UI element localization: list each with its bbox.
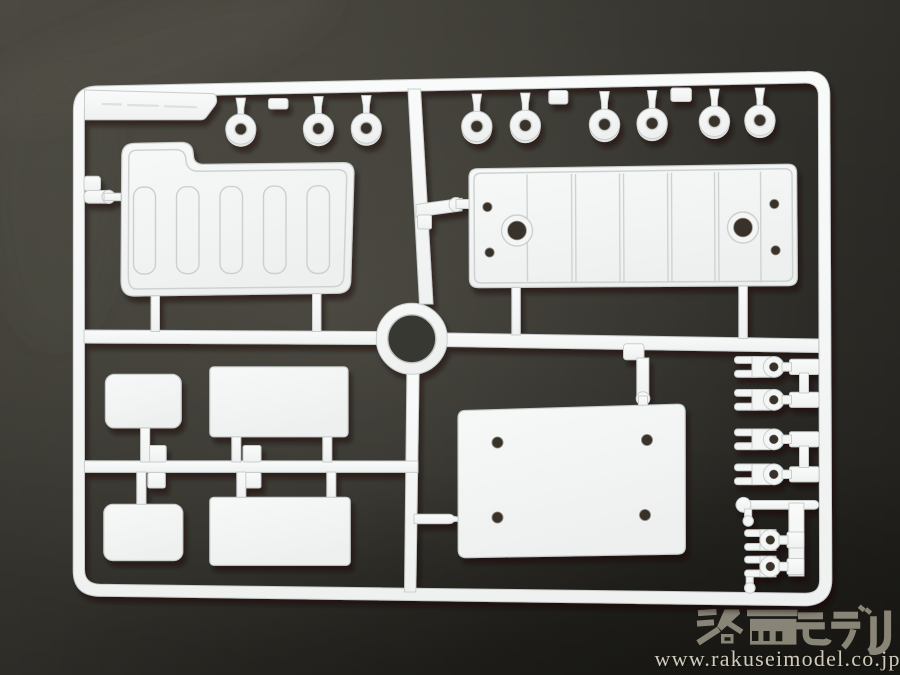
svg-text:www.rakuseimodel.co.jp: www.rakuseimodel.co.jp (655, 646, 900, 671)
